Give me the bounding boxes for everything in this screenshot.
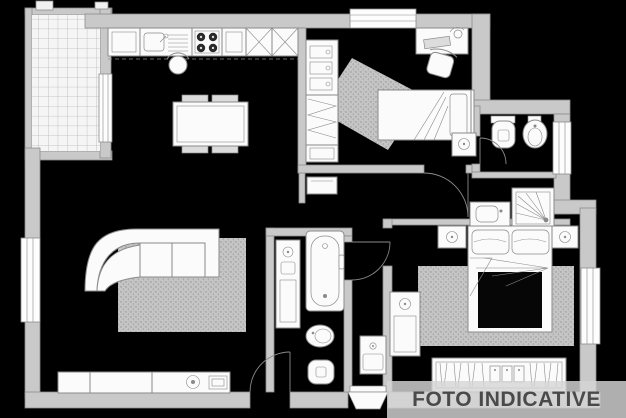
shoe-cabinet bbox=[307, 177, 337, 194]
master-bedroom-window bbox=[581, 268, 600, 344]
bidet-icon bbox=[306, 325, 334, 347]
shower-room bbox=[470, 188, 554, 228]
washing-machine bbox=[360, 336, 386, 374]
washbasin-cabinet bbox=[470, 202, 510, 226]
bathroom-2-window bbox=[553, 122, 571, 174]
main-bathroom bbox=[276, 231, 344, 384]
bathtub-icon bbox=[306, 231, 344, 311]
balcony-opening bbox=[99, 74, 112, 142]
nightstand-left bbox=[438, 226, 466, 248]
nightstand-right bbox=[552, 226, 578, 248]
bidet-icon bbox=[523, 116, 547, 148]
double-bed bbox=[468, 226, 552, 332]
nightstand bbox=[452, 133, 476, 156]
watermark-band: FOTO INDICATIVE bbox=[387, 381, 626, 418]
top-window bbox=[350, 9, 416, 28]
toilet-icon bbox=[491, 116, 515, 148]
left-window bbox=[21, 238, 40, 322]
bathroom-2 bbox=[491, 116, 547, 148]
watermark-text: FOTO INDICATIVE bbox=[412, 388, 601, 412]
kitchen-counter bbox=[108, 28, 298, 59]
master-bedroom bbox=[390, 226, 578, 392]
corridor-entrance bbox=[348, 386, 388, 409]
dresser bbox=[390, 292, 420, 356]
chimney-mark bbox=[36, 1, 53, 10]
toilet-icon bbox=[308, 360, 334, 384]
floor-plan-image: FOTO INDICATIVE bbox=[0, 0, 626, 418]
balcony-tiles bbox=[32, 15, 100, 151]
wardrobe-drawers bbox=[306, 40, 338, 162]
floor-plan-drawing bbox=[0, 0, 626, 418]
tv-sideboard bbox=[58, 372, 230, 393]
washbasin-cabinet bbox=[276, 240, 300, 328]
chimney-mark bbox=[95, 2, 108, 9]
shower-icon bbox=[512, 188, 554, 228]
hall-door bbox=[424, 173, 468, 217]
dining-table bbox=[173, 95, 248, 153]
